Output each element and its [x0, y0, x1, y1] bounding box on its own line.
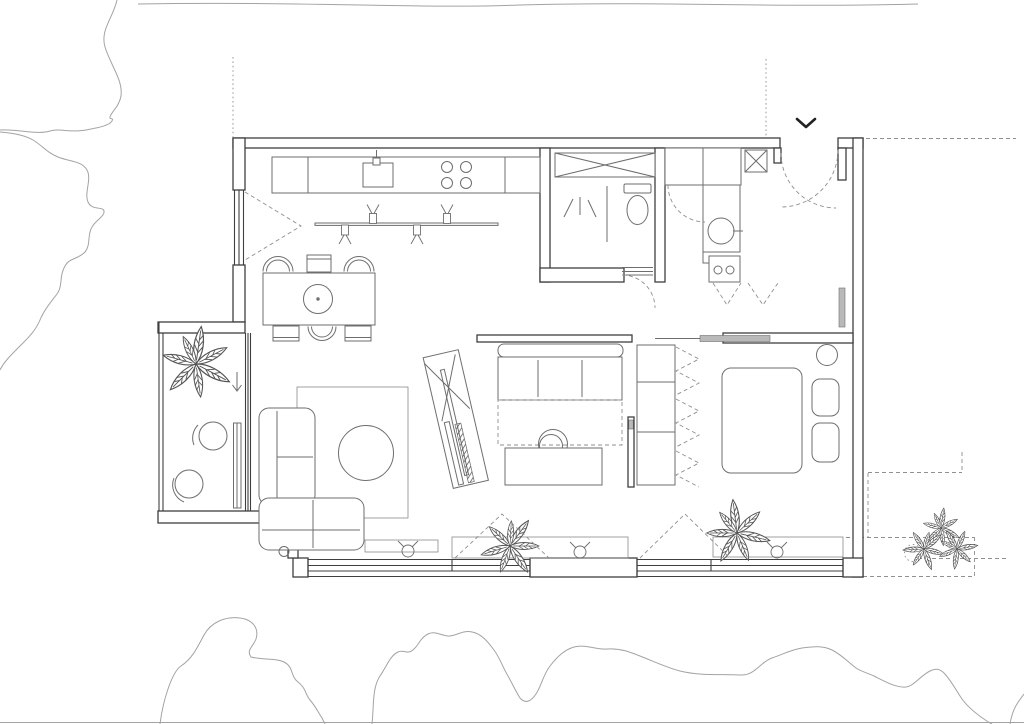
washbasin-counter: [703, 185, 743, 282]
sliding-door-panel: [700, 336, 770, 342]
stool-backrest: [173, 478, 184, 502]
closet-fold-marks: [713, 283, 778, 305]
wall-top-left-segment: [233, 138, 780, 148]
entry-chevron-icon: [797, 119, 815, 127]
bathroom: [555, 153, 655, 308]
partition-door-track-accent: [629, 420, 633, 429]
lower-unit: [703, 252, 740, 282]
round-side-table: [817, 345, 838, 366]
dining-stool: [345, 326, 371, 341]
wall-bathroom-right: [655, 148, 665, 282]
wall-light-icon: [398, 541, 418, 557]
entry-door-swing-right: [781, 153, 836, 208]
double-bed-mattress: [722, 368, 802, 473]
kitchen-counter: [272, 157, 540, 193]
shower-icon: [564, 197, 596, 217]
sofa-bed-headboard: [498, 344, 623, 357]
entry-door-swing-left: [781, 150, 838, 207]
toilet-cistern: [624, 184, 651, 193]
entry-jamb-right: [838, 148, 846, 180]
wall-bathroom-left: [540, 148, 550, 282]
tree-canopy-bottom-right-corner: [1010, 694, 1024, 724]
potted-plant-icon: [699, 492, 775, 569]
glazing-balcony-living: [246, 333, 251, 511]
wall-bottom-pier-left: [293, 558, 308, 577]
corner-sofa: [259, 408, 364, 557]
spotlight-icon: [367, 205, 379, 224]
tree-canopy-top-left: [0, 0, 121, 132]
floor-plan-page: [0, 0, 1024, 724]
pillow: [812, 379, 839, 416]
radiator: [839, 288, 845, 327]
sofa-bed-mattress: [498, 357, 622, 400]
window-left-wall: [233, 190, 245, 265]
step-down-arrow: [233, 372, 242, 391]
tree-canopy-top-edge: [138, 3, 918, 6]
balcony: [162, 326, 241, 508]
dining-chair-arc: [308, 327, 336, 341]
wall-left-lower: [233, 265, 245, 322]
dining-chair-arc: [263, 257, 293, 272]
track-lighting: [315, 205, 498, 245]
dining-area: [263, 255, 375, 341]
stool-backrest: [193, 425, 198, 445]
folding-door-marks: [676, 347, 699, 487]
toilet: [624, 184, 651, 225]
bathroom-door-swing: [622, 275, 655, 308]
kitchen: [272, 150, 540, 244]
round-coffee-table: [339, 426, 394, 481]
round-stool: [193, 422, 227, 450]
wall-study-north: [477, 335, 632, 342]
spotlight-icon: [339, 225, 351, 244]
wall-light-icon: [570, 542, 590, 558]
wall-left-upper: [233, 138, 245, 190]
angled-tv-panel: [423, 350, 488, 489]
bathroom-door-threshold: [622, 268, 653, 276]
bedroom: [699, 345, 843, 570]
round-stool: [173, 470, 203, 502]
wall-bottom-pier-center: [530, 558, 637, 577]
large-potted-plant-icon: [162, 326, 231, 398]
entry-jamb-left: [774, 148, 781, 163]
floor-plan-drawing: [0, 0, 1024, 724]
spotlight-icon: [441, 205, 453, 224]
tree-canopy-bottom-center-right: [372, 632, 992, 724]
wall-bottom-pier-right: [843, 558, 863, 577]
wardrobe: [637, 345, 675, 485]
entry-hall: [665, 119, 845, 327]
sink-faucet: [373, 158, 380, 165]
closet-door-swing: [668, 185, 705, 222]
appliance-knob: [726, 266, 734, 274]
window-left-opening-mark: [245, 192, 301, 260]
appliance-knob: [714, 266, 722, 274]
window-sill-unit-center: [452, 537, 628, 558]
dining-stool: [273, 326, 299, 341]
wardrobe-folding-doors: [637, 345, 699, 487]
tree-canopy-bottom-left: [160, 618, 325, 724]
wall-light-icon: [767, 542, 787, 558]
shrub-cluster: [896, 508, 984, 577]
kitchen-sink: [363, 163, 393, 187]
desk: [505, 448, 602, 485]
study-nook: [423, 344, 699, 488]
window-bottom-left: [308, 558, 530, 577]
crossed-cabinet: [555, 153, 655, 177]
window-bottom-right: [637, 558, 843, 577]
spotlight-icon: [411, 225, 423, 244]
pendant-lamp-dot: [316, 297, 319, 300]
sofa-base: [259, 498, 364, 550]
pillow: [812, 423, 839, 462]
window-sill-unit-living: [365, 540, 438, 552]
toilet-bowl: [627, 196, 648, 225]
wall-bathroom-south: [540, 268, 624, 282]
tree-canopy-left: [0, 132, 104, 370]
crossed-duct-shaft: [745, 150, 767, 172]
dining-chair-arc: [344, 257, 374, 272]
dining-stool: [307, 255, 331, 272]
balcony-railing: [159, 322, 163, 511]
wall-right: [853, 138, 863, 577]
